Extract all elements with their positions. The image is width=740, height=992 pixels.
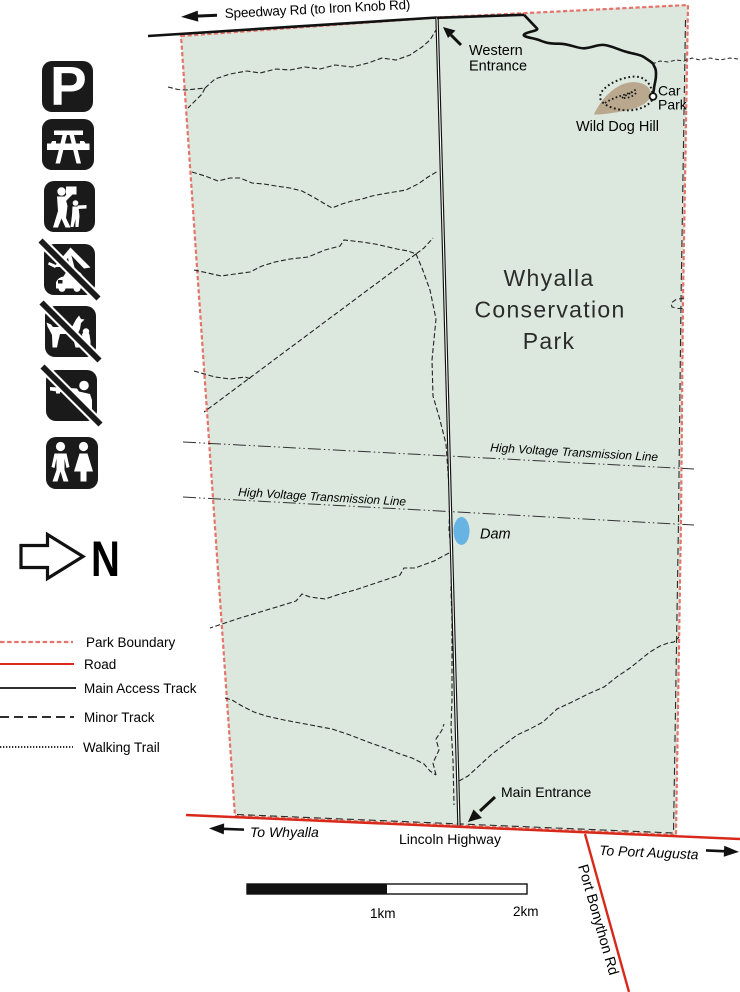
- svg-text:To Whyalla: To Whyalla: [250, 824, 319, 840]
- svg-text:2km: 2km: [513, 904, 539, 919]
- svg-text:Conservation: Conservation: [474, 297, 625, 323]
- svg-text:Park: Park: [658, 97, 688, 113]
- svg-text:Dam: Dam: [480, 527, 511, 543]
- svg-text:Western: Western: [469, 43, 523, 59]
- svg-text:N: N: [91, 531, 120, 587]
- svg-text:Entrance: Entrance: [469, 59, 527, 75]
- svg-text:Road: Road: [84, 657, 116, 672]
- svg-text:Park: Park: [523, 328, 576, 354]
- svg-text:Whyalla: Whyalla: [504, 265, 595, 291]
- svg-text:Main Access Track: Main Access Track: [84, 681, 197, 696]
- svg-text:Park Boundary: Park Boundary: [86, 635, 176, 650]
- svg-text:Walking Trail: Walking Trail: [83, 740, 160, 755]
- svg-text:Wild Dog Hill: Wild Dog Hill: [576, 119, 659, 135]
- svg-text:Main Entrance: Main Entrance: [501, 784, 591, 800]
- svg-text:1km: 1km: [370, 906, 396, 921]
- svg-text:Lincoln Highway: Lincoln Highway: [399, 831, 501, 847]
- svg-text:Minor Track: Minor Track: [84, 710, 155, 725]
- svg-text:P: P: [50, 55, 87, 117]
